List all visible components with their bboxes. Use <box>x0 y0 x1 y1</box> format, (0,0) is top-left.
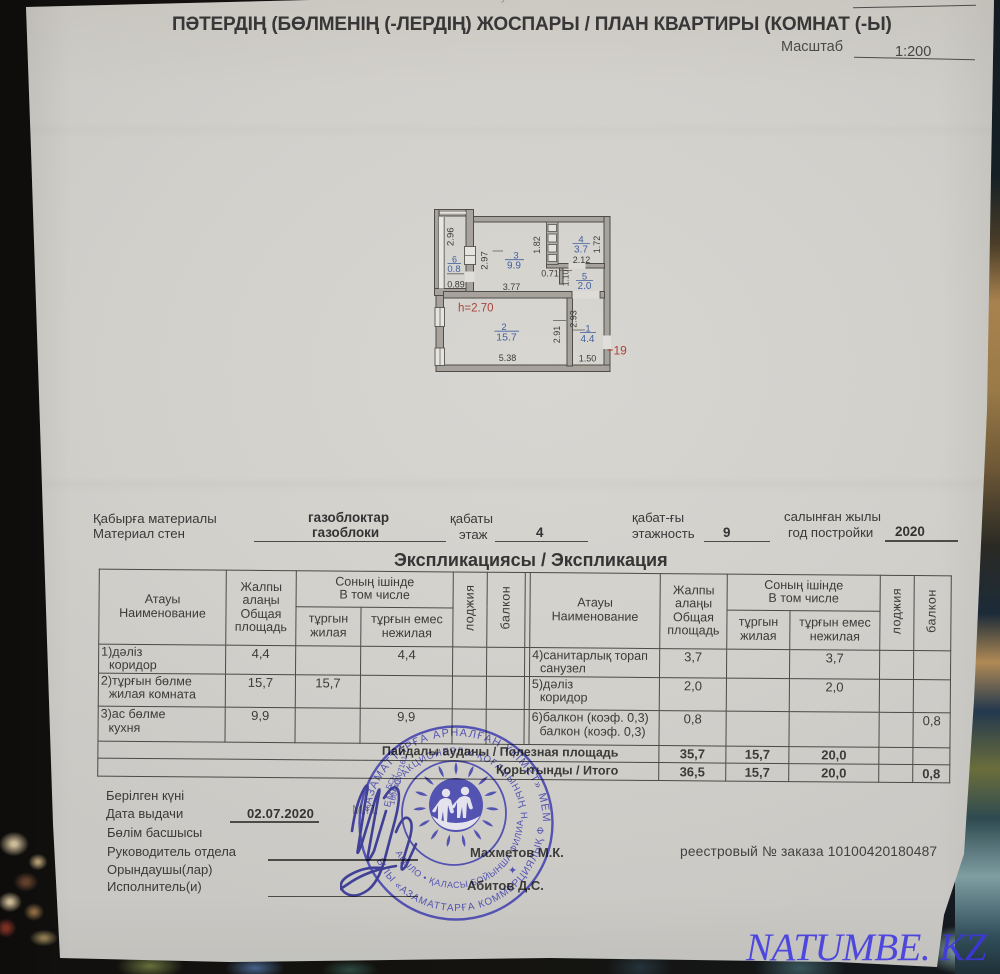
svg-text:4.4: 4.4 <box>581 334 595 345</box>
svg-text:15.7: 15.7 <box>496 331 517 343</box>
svg-text:1.72: 1.72 <box>592 236 602 254</box>
svg-text:2.93: 2.93 <box>568 310 578 328</box>
svg-text:3.7: 3.7 <box>574 244 588 255</box>
svg-text:0.71: 0.71 <box>541 269 559 279</box>
svg-text:2.91: 2.91 <box>552 326 562 344</box>
svg-text:2.0: 2.0 <box>578 281 592 292</box>
svg-text:1.82: 1.82 <box>532 236 542 254</box>
svg-text:2.12: 2.12 <box>573 255 591 265</box>
svg-text:✦: ✦ <box>508 865 517 877</box>
svg-text:3.77: 3.77 <box>503 282 521 292</box>
svg-text:19: 19 <box>614 344 628 358</box>
svg-text:2.97: 2.97 <box>480 251 491 270</box>
svg-text:1.50: 1.50 <box>579 354 597 364</box>
svg-text:2.96: 2.96 <box>445 227 456 246</box>
svg-text:1.10: 1.10 <box>560 269 570 286</box>
svg-text:5.38: 5.38 <box>499 353 517 363</box>
svg-text:6: 6 <box>452 255 457 265</box>
svg-text:9.9: 9.9 <box>507 260 521 271</box>
svg-text:h=2.70: h=2.70 <box>458 303 494 315</box>
svg-text:0.89: 0.89 <box>447 280 465 290</box>
svg-text:0.8: 0.8 <box>447 264 460 275</box>
